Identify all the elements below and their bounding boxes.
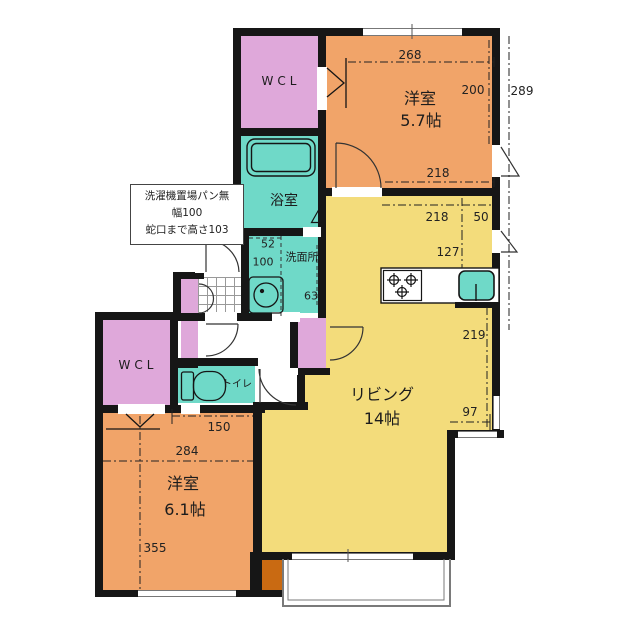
- floor-plan: WCL 浴室 洗面所 洋室 5.7帖 リビング 14帖 WCL トイレ 洋室 6…: [0, 0, 640, 640]
- dim-living-219: 219: [463, 329, 486, 341]
- corridor-door-arc: [206, 324, 238, 356]
- door-opening-room2: [181, 404, 200, 414]
- living-storage: [298, 318, 326, 368]
- wall: [173, 272, 204, 279]
- label-room2-size: 6.1帖: [164, 502, 205, 518]
- window-room2-bottom: [138, 590, 236, 597]
- dim-kitchen-218: 218: [426, 211, 449, 223]
- window-living-right: [493, 396, 500, 429]
- balcony: [283, 559, 450, 606]
- dim-living-97: 97: [462, 406, 477, 418]
- wall: [241, 236, 249, 313]
- label-room1-name: 洋室: [404, 91, 436, 107]
- living-ext-door-mark: [501, 231, 517, 252]
- dim-right-total: 289: [511, 85, 534, 97]
- door-opening-room1: [332, 187, 382, 197]
- door-opening-bath: [303, 227, 321, 237]
- dim-room2-150: 150: [208, 421, 231, 433]
- wall: [253, 405, 262, 560]
- dim-room1-width: 268: [399, 49, 422, 61]
- wall: [172, 358, 258, 366]
- dim-kitchen-127: 127: [437, 246, 460, 258]
- door-opening-wcl-top: [317, 67, 327, 110]
- label-bath: 浴室: [270, 194, 298, 208]
- shoe-cabinet: [181, 277, 198, 313]
- label-washroom: 洗面所: [286, 252, 319, 263]
- label-toilet: トイレ: [222, 380, 252, 390]
- wall: [241, 128, 318, 136]
- room-bath: [241, 136, 318, 228]
- door-opening-room1-ext: [492, 145, 500, 177]
- room1-ext-door-mark: [501, 147, 519, 176]
- entrance-tile-floor: [198, 277, 241, 313]
- door-opening-washroom: [272, 312, 300, 322]
- dim-wash-63: 63: [304, 291, 318, 302]
- note-line-2: 幅100: [131, 205, 243, 222]
- hall-storage: [181, 321, 198, 360]
- pipe-space: [262, 560, 283, 590]
- dim-room1-bottom: 218: [427, 167, 450, 179]
- room-living-c: [305, 373, 327, 413]
- room-living-b: [262, 410, 447, 552]
- dim-kitchen-50: 50: [473, 211, 488, 223]
- wall: [253, 402, 308, 410]
- wall: [250, 552, 262, 597]
- door-opening-corridor: [205, 312, 237, 322]
- wall: [298, 368, 330, 375]
- door-opening-living-ext: [492, 230, 500, 253]
- dim-wm-width: 52: [261, 239, 275, 250]
- label-wcl-left: WCL: [119, 359, 158, 371]
- wall: [447, 438, 455, 560]
- note-line-1: 洗濯機置場パン無: [131, 188, 243, 205]
- label-living-name: リビング: [350, 387, 414, 403]
- label-wcl-top: WCL: [262, 75, 301, 87]
- note-line-3: 蛇口まで高さ103: [131, 222, 243, 239]
- label-living-size: 14帖: [364, 411, 400, 427]
- wall: [262, 590, 283, 597]
- dim-room1-height: 200: [462, 84, 485, 96]
- wall: [95, 320, 103, 597]
- window-living-bottom: [292, 553, 413, 560]
- dim-wm-depth: 100: [253, 257, 274, 268]
- dim-room2-284: 284: [176, 445, 199, 457]
- washing-machine-note: 洗濯機置場パン無 幅100 蛇口まで高さ103: [130, 184, 244, 245]
- window-room1-top: [363, 28, 462, 36]
- label-room2-name: 洋室: [167, 476, 199, 492]
- wall: [95, 312, 181, 320]
- dim-room2-355: 355: [144, 542, 167, 554]
- window-step: [458, 431, 497, 438]
- door-opening-wcl-left: [118, 404, 165, 414]
- toilet-door-arc: [259, 369, 296, 405]
- label-room1-size: 5.7帖: [400, 113, 441, 129]
